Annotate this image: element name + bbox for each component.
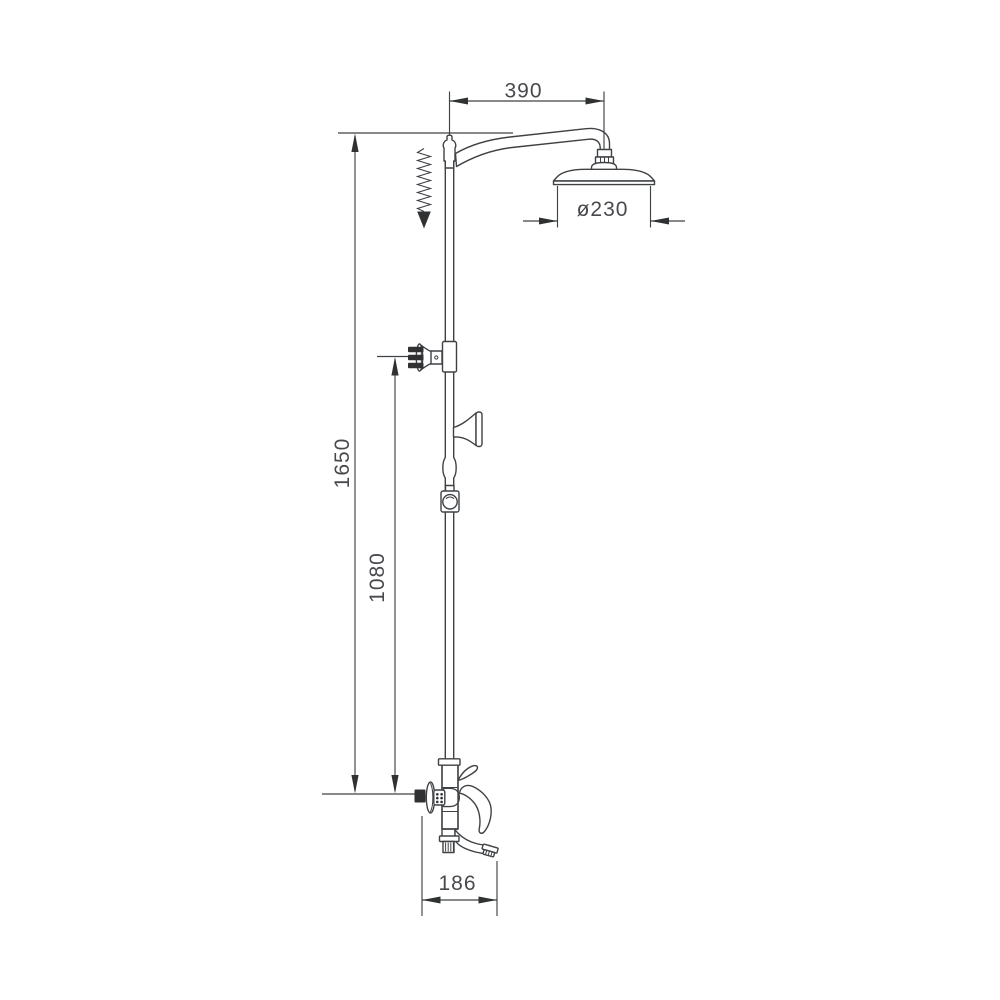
arrow-right-icon xyxy=(586,98,605,105)
spout-aerator xyxy=(481,844,499,858)
outlet-collar xyxy=(440,836,460,842)
arrow-down-icon xyxy=(417,212,431,229)
dim-label-head-diameter: ø230 xyxy=(577,198,629,221)
spring-zigzag-icon xyxy=(418,149,431,212)
hand-shower-holder xyxy=(408,342,457,373)
supply-nut xyxy=(415,790,426,803)
dim-arm-projection: 390 xyxy=(450,80,605,150)
technical-drawing-page: 1650 1080 390 ø230 xyxy=(0,0,1000,1000)
arrow-up-icon xyxy=(351,134,358,153)
head-top-flange xyxy=(554,169,655,181)
pipe-top-finial xyxy=(443,135,456,168)
height-adjust-arrow xyxy=(417,149,431,229)
shower-head xyxy=(554,150,655,185)
dim-label-spout-projection: 186 xyxy=(438,872,476,895)
dimension-annotations: 1650 1080 390 ø230 xyxy=(322,80,685,917)
hand-shower-nubs xyxy=(408,347,424,368)
riser-pipe xyxy=(445,150,453,760)
arm-connector-nut xyxy=(598,150,612,158)
dim-total-height: 1650 xyxy=(331,134,359,794)
arrow-left-icon xyxy=(450,98,469,105)
holder-sleeve xyxy=(443,342,457,373)
wall-bracket xyxy=(454,412,483,447)
dim-label-holder-height: 1080 xyxy=(366,552,389,603)
diverter-lever xyxy=(458,766,477,781)
dim-label-total-height: 1650 xyxy=(331,438,354,489)
pipe-slip-joint xyxy=(443,458,456,479)
arrow-left-icon xyxy=(651,218,670,225)
body-top-collar xyxy=(439,759,461,765)
mixer-handle xyxy=(460,785,492,833)
technical-drawing-canvas: 1650 1080 390 ø230 xyxy=(0,0,1000,1000)
slider-diverter xyxy=(441,486,459,513)
bracket-wall-rim xyxy=(476,412,482,447)
shower-arm xyxy=(456,128,610,166)
shower-column-artwork xyxy=(408,128,655,857)
arrow-right-icon xyxy=(539,218,558,225)
arrow-down-icon xyxy=(391,775,398,794)
dim-holder-height: 1080 xyxy=(366,357,410,794)
dim-head-diameter: ø230 xyxy=(523,186,685,228)
wall-supply-connection xyxy=(415,782,445,813)
arrow-up-icon xyxy=(391,357,398,376)
valve-boss xyxy=(444,788,460,806)
arrow-right-icon xyxy=(479,897,498,904)
arrow-left-icon xyxy=(422,897,441,904)
head-rim-band xyxy=(554,181,655,185)
knurled-nut xyxy=(434,790,445,805)
dim-label-arm-projection: 390 xyxy=(504,80,542,103)
mixer-faucet xyxy=(415,759,499,858)
bottom-outlet xyxy=(440,836,460,853)
holder-joint xyxy=(431,351,443,364)
arrow-down-icon xyxy=(351,775,358,794)
